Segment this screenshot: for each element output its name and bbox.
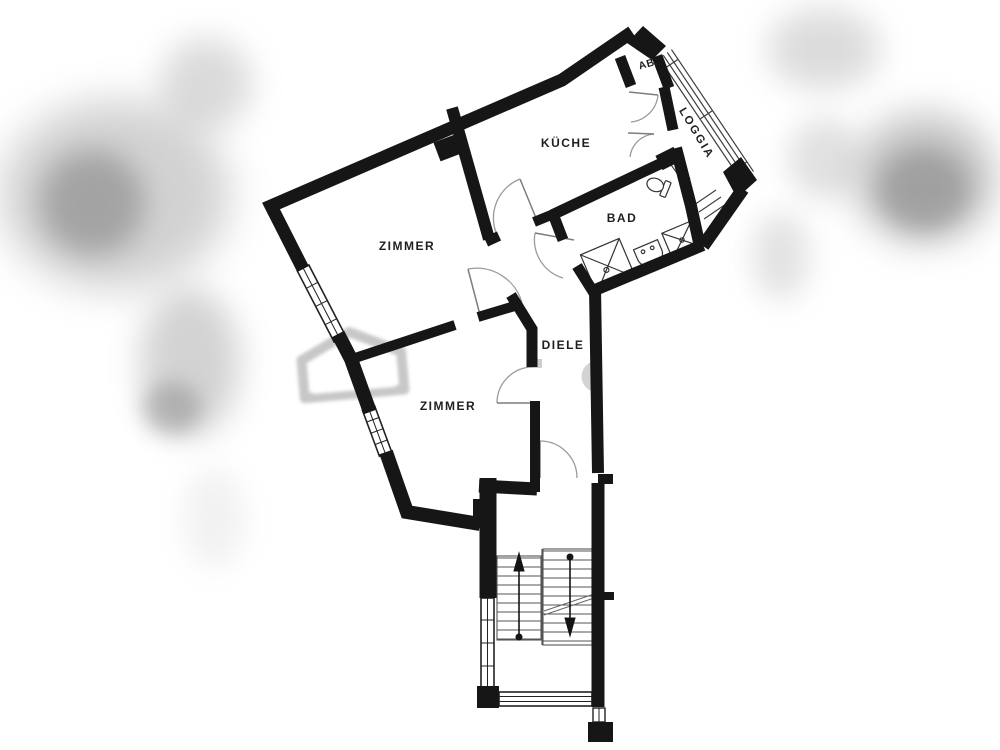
walls (271, 26, 757, 742)
room-label-zimmer-upper: ZIMMER (379, 239, 435, 253)
window (499, 692, 592, 706)
window (297, 265, 345, 342)
entrance-door-arc (540, 441, 577, 478)
stair-down-arrow (565, 554, 575, 636)
window (362, 406, 391, 456)
window (593, 708, 605, 722)
window (481, 598, 494, 687)
floorplan-svg: ZIMMER KÜCHE BAD ZIMMER DIELE LOGGIA AB. (0, 0, 1000, 750)
room-label-diele: DIELE (542, 338, 585, 352)
ab-door-arc (631, 95, 658, 122)
room2-door-arc (497, 367, 533, 403)
room-label-zimmer-lower: ZIMMER (420, 399, 476, 413)
room-label-ab: AB. (637, 55, 659, 72)
stair-up-arrow (514, 553, 524, 640)
room-label-bad: BAD (607, 211, 638, 225)
door-arcs (468, 95, 658, 478)
toilet-symbol (644, 174, 671, 197)
room-label-kueche: KÜCHE (541, 135, 591, 150)
loggia-door-arc (630, 134, 654, 157)
staircase (497, 549, 597, 645)
floorplan-page: ZIMMER KÜCHE BAD ZIMMER DIELE LOGGIA AB. (0, 0, 1000, 750)
kitchen-door-arc (493, 179, 520, 235)
